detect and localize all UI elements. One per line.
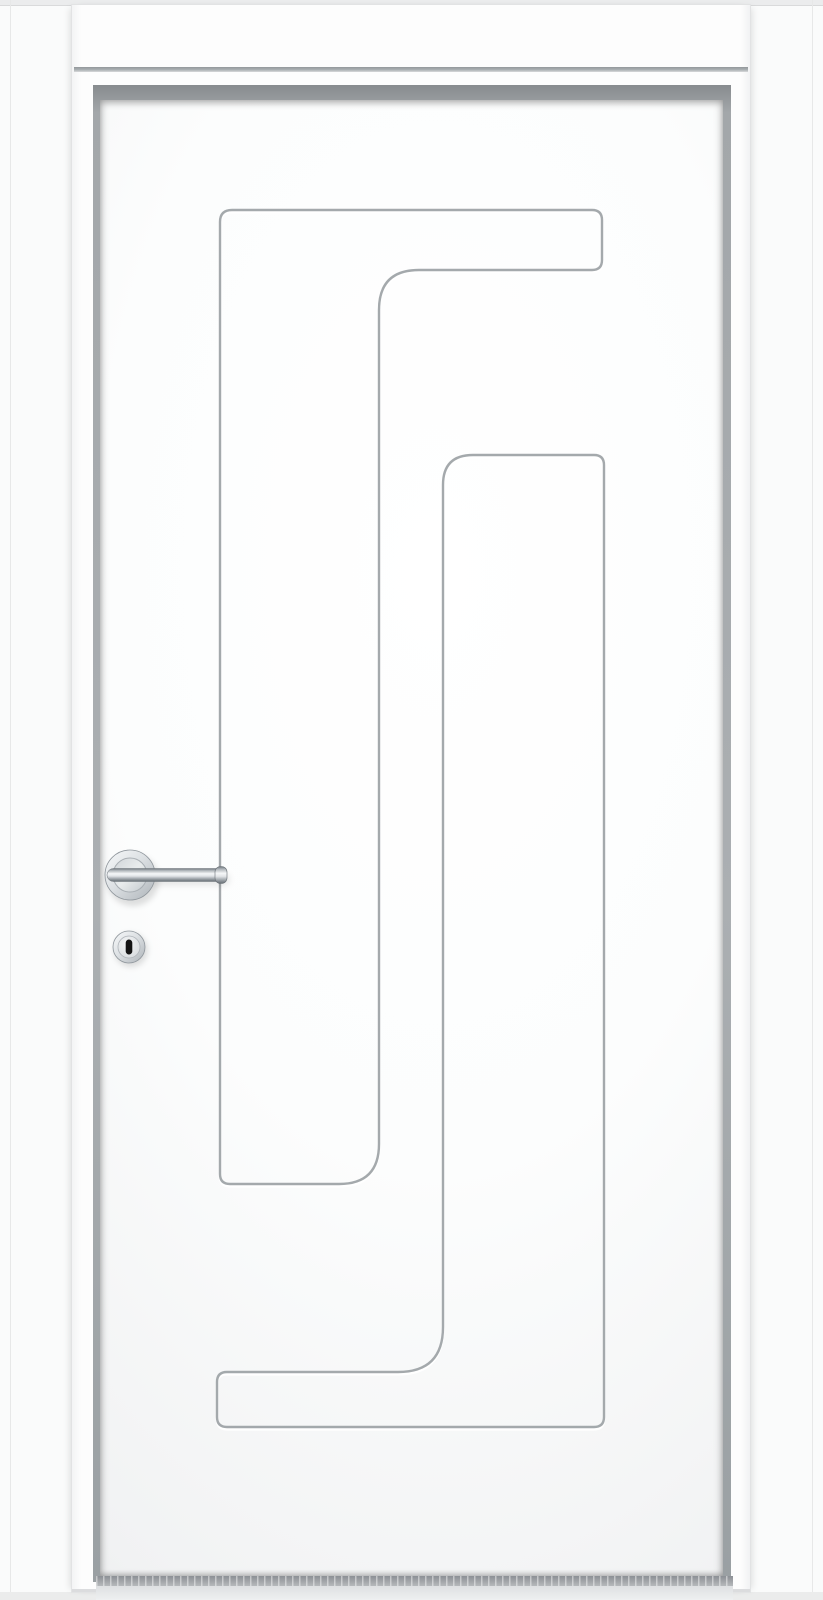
wall-edge-right: [812, 0, 813, 1600]
door-slab: [100, 100, 723, 1576]
floor-threshold: [96, 1586, 733, 1600]
under-door-shadow: [96, 1576, 733, 1586]
door-product-photo: [0, 0, 823, 1600]
head-casing-shadow: [74, 67, 748, 72]
wall-edge-left: [10, 0, 11, 1600]
